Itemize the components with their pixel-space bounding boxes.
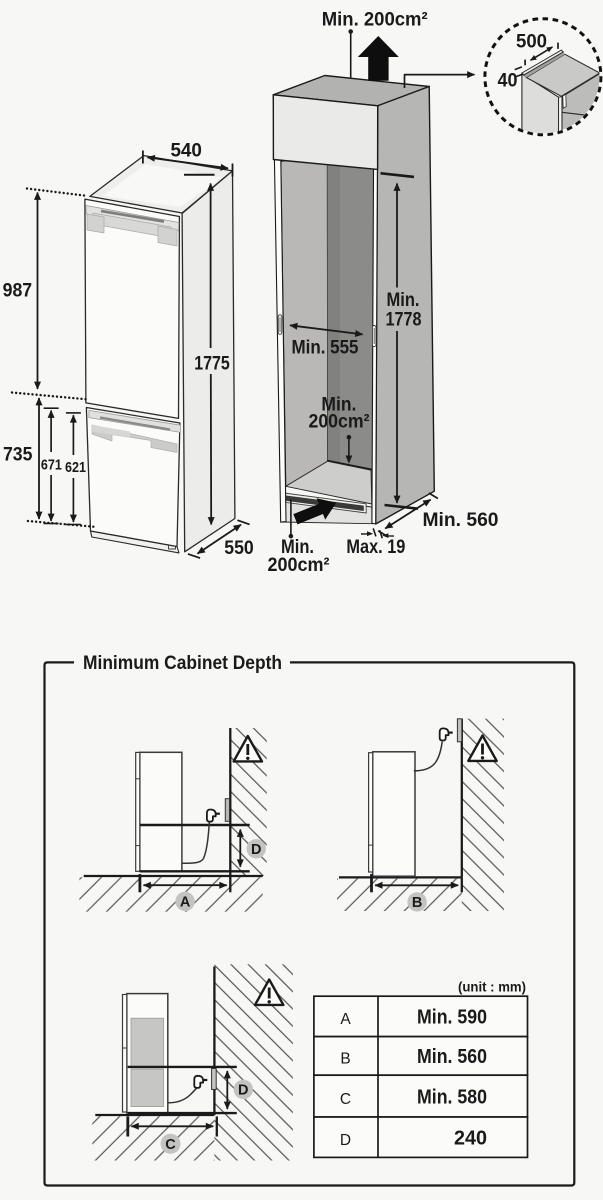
svg-text:500: 500 xyxy=(516,30,547,52)
svg-text:550: 550 xyxy=(224,537,254,559)
svg-text:A: A xyxy=(180,895,191,911)
svg-text:40: 40 xyxy=(498,69,518,91)
svg-text:Min. 590: Min. 590 xyxy=(417,1007,487,1029)
svg-text:1775: 1775 xyxy=(194,352,230,374)
svg-text:240: 240 xyxy=(454,1127,487,1149)
svg-text:D: D xyxy=(251,842,261,858)
svg-text:Min. 555: Min. 555 xyxy=(292,336,359,358)
svg-text:Min. 580: Min. 580 xyxy=(417,1086,487,1108)
svg-text:Min. 200cm²: Min. 200cm² xyxy=(322,8,428,30)
svg-text:540: 540 xyxy=(170,140,202,162)
svg-text:B: B xyxy=(412,895,422,911)
svg-text:D: D xyxy=(340,1132,351,1149)
svg-text:D: D xyxy=(238,1083,248,1099)
svg-text:671: 671 xyxy=(41,458,62,474)
svg-text:A: A xyxy=(340,1011,351,1028)
svg-text:B: B xyxy=(340,1051,350,1068)
svg-text:(unit : mm): (unit : mm) xyxy=(458,980,526,995)
svg-text:Min. 560: Min. 560 xyxy=(417,1046,487,1068)
svg-text:621: 621 xyxy=(65,460,86,476)
svg-text:200cm²: 200cm² xyxy=(309,411,370,433)
svg-text:C: C xyxy=(165,1137,176,1153)
svg-text:200cm²: 200cm² xyxy=(268,554,330,576)
svg-text:Min. 560: Min. 560 xyxy=(423,509,499,531)
svg-text:987: 987 xyxy=(3,280,33,302)
svg-text:1778: 1778 xyxy=(386,308,422,330)
svg-text:C: C xyxy=(340,1091,351,1108)
svg-text:Max. 19: Max. 19 xyxy=(346,536,405,558)
svg-text:735: 735 xyxy=(3,443,33,465)
svg-text:Minimum Cabinet Depth: Minimum Cabinet Depth xyxy=(83,652,282,674)
